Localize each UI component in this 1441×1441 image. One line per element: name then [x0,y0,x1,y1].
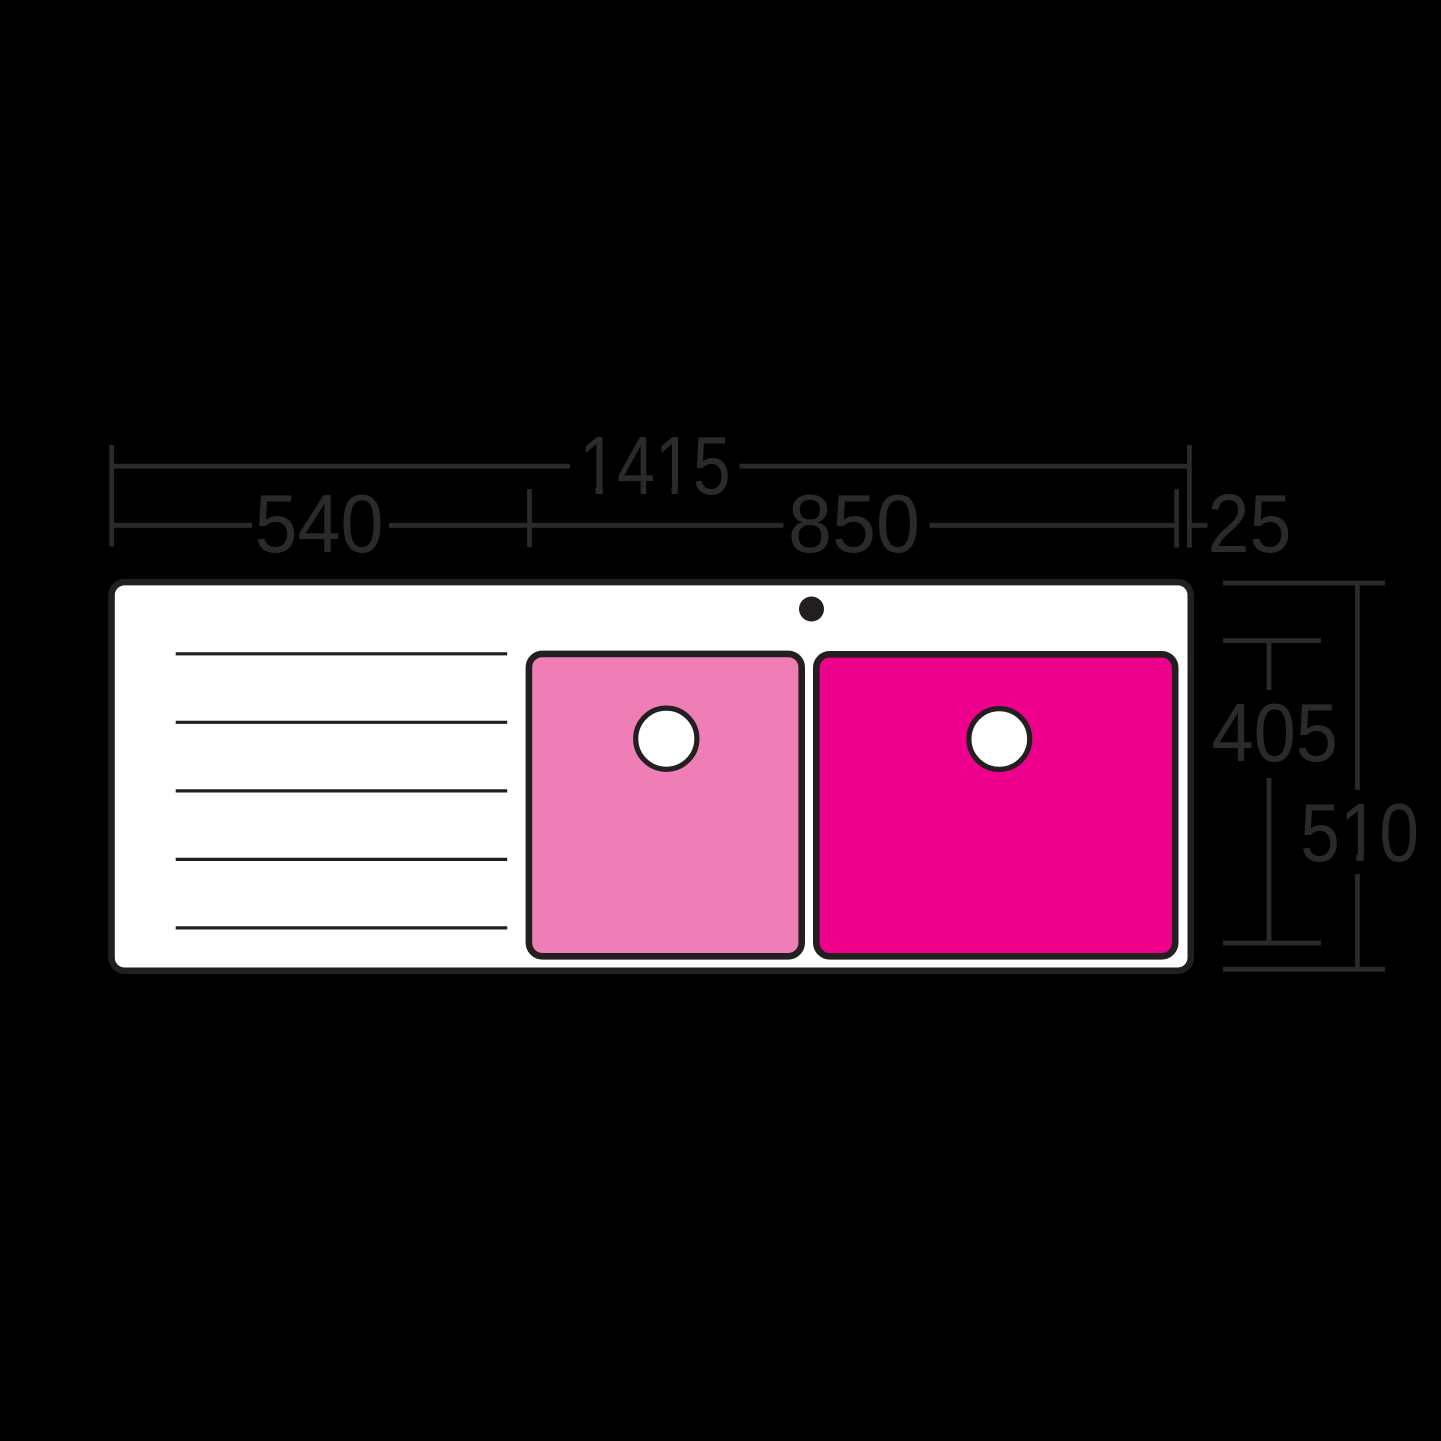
svg-text:850: 850 [788,477,920,570]
svg-text:1415: 1415 [579,419,730,512]
svg-text:510: 510 [1300,786,1419,879]
svg-text:540: 540 [255,477,384,570]
svg-text:405: 405 [1211,686,1338,779]
svg-text:25: 25 [1208,477,1292,570]
